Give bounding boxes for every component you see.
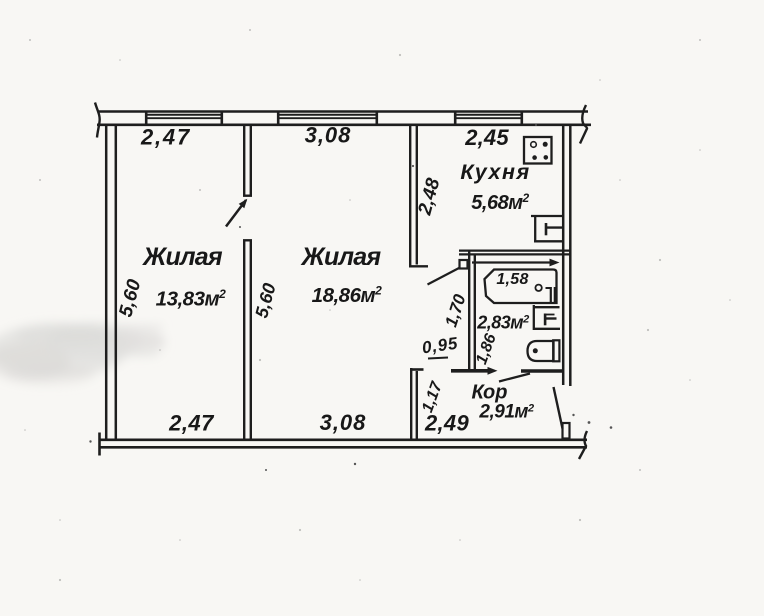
svg-text:Кухня: Кухня — [460, 160, 530, 184]
svg-text:Жилая: Жилая — [141, 243, 223, 271]
svg-text:13,83м2: 13,83м2 — [156, 287, 226, 311]
svg-text:2,83м2: 2,83м2 — [476, 313, 529, 333]
svg-text:Кор: Кор — [472, 382, 508, 404]
svg-text:2,47: 2,47 — [140, 125, 191, 150]
svg-text:3,08: 3,08 — [305, 123, 352, 148]
svg-text:2,91м2: 2,91м2 — [478, 402, 534, 423]
svg-text:3,08: 3,08 — [320, 410, 367, 435]
svg-text:2,47: 2,47 — [168, 411, 215, 436]
svg-text:Жилая: Жилая — [300, 243, 382, 271]
svg-text:2,45: 2,45 — [464, 125, 509, 150]
svg-text:1,58: 1,58 — [496, 271, 528, 288]
svg-text:18,86м2: 18,86м2 — [312, 284, 382, 308]
svg-text:5,68м2: 5,68м2 — [471, 191, 529, 214]
